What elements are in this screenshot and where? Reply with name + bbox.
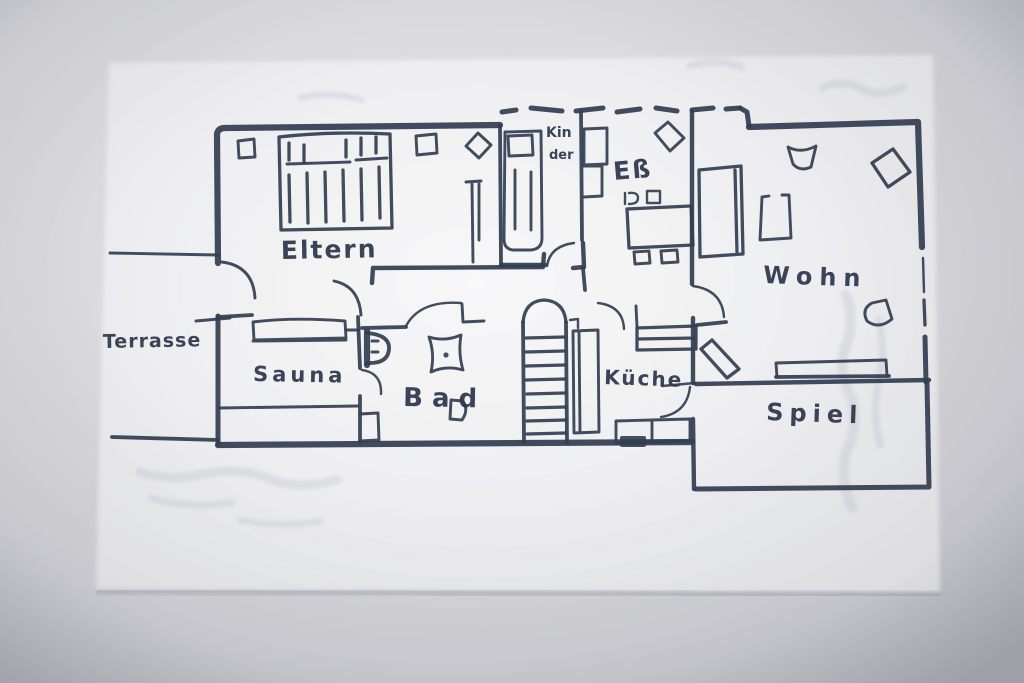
floor-plan-svg: Eltern Eß Wohn Spiel Küche Bad Sauna Ter… <box>0 0 1024 683</box>
photo-of-floor-plan: Eltern Eß Wohn Spiel Küche Bad Sauna Ter… <box>0 0 1024 683</box>
photo-vignette <box>0 0 1024 683</box>
